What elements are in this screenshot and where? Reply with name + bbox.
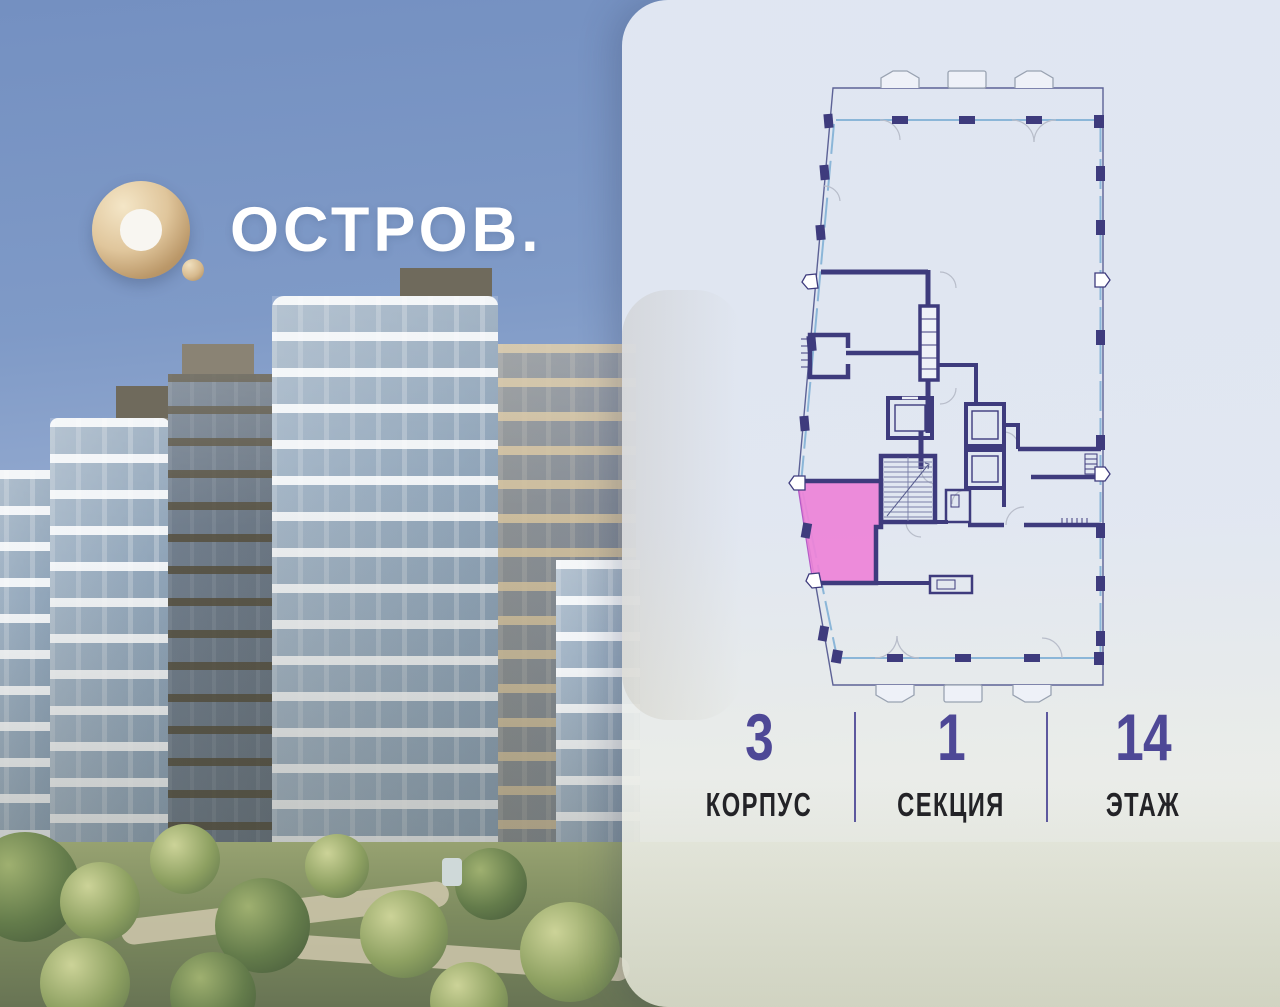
tower-main bbox=[272, 296, 498, 888]
unit-panel: 3 КОРПУС 1 СЕКЦИЯ 14 ЭТАЖ bbox=[622, 0, 1280, 1007]
playground-structure bbox=[442, 858, 462, 886]
tree bbox=[455, 848, 527, 920]
plan-stairwell bbox=[881, 456, 935, 522]
tower-dark bbox=[168, 374, 274, 886]
info-building: 3 КОРПУС bbox=[664, 704, 854, 824]
separator bbox=[1046, 712, 1048, 822]
floor-label: ЭТАЖ bbox=[1075, 786, 1212, 824]
brand-logo: ОСТРОВ. bbox=[92, 170, 543, 290]
tree bbox=[305, 834, 369, 898]
building-label: КОРПУС bbox=[691, 786, 828, 824]
tree bbox=[60, 862, 140, 942]
section-number: 1 bbox=[877, 704, 1025, 770]
page: ОСТРОВ. bbox=[0, 0, 1280, 1007]
floor-plan bbox=[780, 60, 1250, 720]
tower-dark-roof bbox=[182, 344, 254, 378]
panel-ghost-building bbox=[622, 290, 742, 720]
tower-left bbox=[50, 418, 170, 888]
tree bbox=[150, 824, 220, 894]
brand-o-dot bbox=[182, 259, 204, 281]
unit-info: 3 КОРПУС 1 СЕКЦИЯ 14 ЭТАЖ bbox=[664, 704, 1238, 824]
info-section: 1 СЕКЦИЯ bbox=[856, 704, 1046, 824]
info-floor: 14 ЭТАЖ bbox=[1048, 704, 1238, 824]
brand-o-icon bbox=[92, 181, 190, 279]
separator bbox=[854, 712, 856, 822]
brand-name: ОСТРОВ. bbox=[230, 194, 543, 266]
tree bbox=[40, 938, 130, 1007]
plan-bay-windows-top bbox=[881, 71, 1053, 88]
plan-outer-boundary bbox=[798, 88, 1103, 685]
tree bbox=[520, 902, 620, 1002]
plan-duct-shaft bbox=[920, 306, 938, 380]
floor-number: 14 bbox=[1069, 704, 1217, 770]
building-number: 3 bbox=[685, 704, 833, 770]
section-label: СЕКЦИЯ bbox=[883, 786, 1020, 824]
tree bbox=[360, 890, 448, 978]
plan-elevators bbox=[888, 398, 1004, 488]
tower-far-left bbox=[0, 470, 54, 890]
